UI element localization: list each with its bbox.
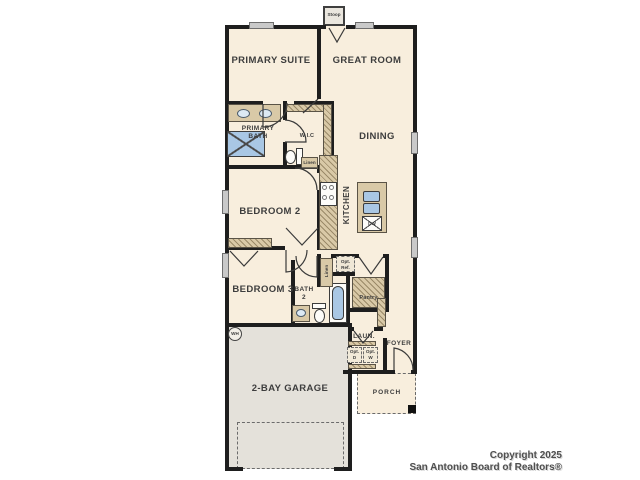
- linen-bath-label: Linen: [324, 261, 330, 281]
- bath2-label: BATH 2: [292, 286, 316, 302]
- stoop-label: Stoop: [323, 12, 345, 18]
- door-stoop: [329, 28, 345, 42]
- dishwasher-label: DW: [362, 221, 382, 227]
- primary-suite-label: PRIMARY SUITE: [231, 55, 311, 67]
- door-closet-bifold: [230, 251, 258, 266]
- opt-washer-label: Opt. W: [364, 349, 377, 361]
- door-suite-hall: [263, 103, 287, 127]
- laundry-label: LAUN.: [348, 333, 380, 341]
- kitchen-label: KITCHEN: [342, 177, 352, 233]
- opt-dryer-label: Opt. D: [348, 349, 361, 361]
- bedroom2-label: BEDROOM 2: [230, 206, 310, 218]
- copyright-line1: Copyright 2025: [409, 450, 562, 462]
- door-symbols-layer: [0, 0, 640, 480]
- great-room-label: GREAT ROOM: [332, 55, 402, 67]
- water-heater-label: WH: [228, 331, 242, 337]
- primary-bath-label: PRIMARY BATH: [233, 125, 283, 141]
- copyright-line2: San Antonio Board of Realtors®: [409, 462, 562, 474]
- door-hall-v: [286, 228, 318, 245]
- dining-label: DINING: [352, 131, 402, 143]
- copyright-notice: Copyright 2025 San Antonio Board of Real…: [409, 450, 562, 473]
- porch-label: PORCH: [366, 389, 408, 397]
- garage-label: 2-BAY GARAGE: [250, 383, 330, 395]
- linen-wic-label: Linen: [301, 160, 318, 166]
- foyer-label: FOYER: [384, 340, 414, 348]
- door-bedroom2: [295, 168, 317, 190]
- opt-ref-label: Opt. Ref.: [337, 259, 354, 271]
- door-bath2: [296, 256, 317, 277]
- bedroom3-label: BEDROOM 3: [226, 284, 300, 296]
- door-pantry-bifold: [359, 257, 383, 274]
- door-front: [394, 348, 413, 370]
- door-hall-angled: [303, 99, 318, 113]
- floor-plan-canvas: Stoop PRIMARY SUITE GREAT ROOM PRIMARY B…: [0, 0, 640, 480]
- pantry-label: Pantry: [352, 295, 385, 302]
- wic-label: W.I.C: [294, 133, 320, 140]
